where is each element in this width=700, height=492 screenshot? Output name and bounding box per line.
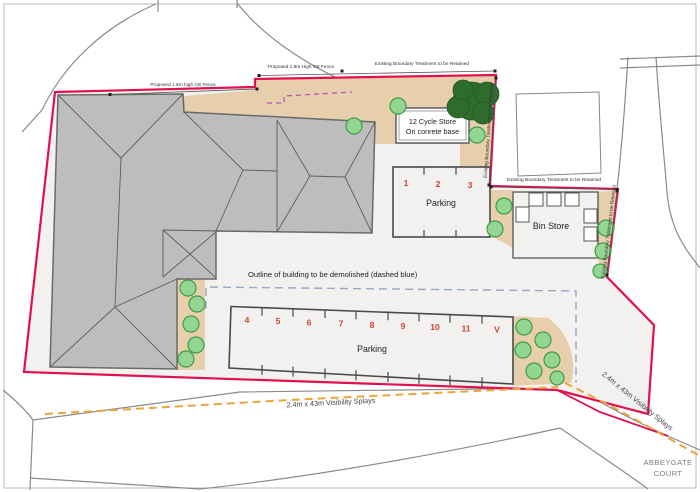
tree [346,118,362,134]
parking-space-number: 1 [404,178,409,188]
bin [547,193,561,206]
parking-upper-label: Parking [426,198,456,208]
tree [183,316,199,332]
cycle-store-label-1: 12 Cycle Store [409,117,456,126]
tree [526,363,542,379]
fence-label-west: Proposed 1.8m high CB Fence [150,82,216,88]
parking-space-number: 3 [468,180,473,190]
boundary-retained-label-binstore: Existing Boundary Treatment to be Retain… [507,177,601,183]
tree [188,337,204,353]
parking-upper: 1 2 3 Parking [393,167,490,237]
tree [487,221,503,237]
visibility-splay-label-west: 2.4m x 43m Visibility Splays [286,396,376,410]
abbeygate-court-label-1: ABBEYGATE [643,458,692,467]
fence-label-north: Proposed 1.8m High CB Fence [268,64,335,70]
tree [544,352,560,368]
parking-space-number: 2 [436,179,441,189]
se-road-bottom-edge [560,428,648,489]
tree [515,342,531,358]
neighbouring-building [516,92,601,176]
site-plan-drawing: 1 2 3 Parking 4 5 6 7 8 9 10 11 V Parkin… [0,0,700,492]
tree [550,371,564,385]
abbeygate-road-right-edge [656,57,700,268]
tree [496,198,512,214]
tree [469,127,485,143]
bin [584,227,597,241]
abbeygate-court-label-2: COURT [654,469,683,478]
tree [535,332,551,348]
road-edge-topright [620,56,700,59]
demolish-note: Outline of building to be demolished (da… [248,270,418,279]
tree [189,296,205,312]
tree [180,280,196,296]
tree [516,319,532,335]
parking-space-number: 10 [430,322,440,332]
boundary-retained-label-north: Existing Boundary Treatment to be Retain… [375,61,469,67]
parking-space-number: 5 [276,316,281,326]
bin-store: Bin Store [513,192,598,258]
tree [178,351,194,367]
front-road-bottom-edge [30,428,560,489]
road-corner-bottomleft [3,390,33,490]
parking-space-number: 8 [370,320,375,330]
bin [516,207,529,222]
parking-space-number: 7 [339,319,344,329]
parking-space-number: 9 [401,321,406,331]
parking-space-number: 11 [461,323,470,333]
bin [529,193,543,206]
bin [584,209,597,223]
road-edge-topright [620,65,700,68]
parking-space-number: 4 [245,315,250,325]
cycle-store-label-2: On conrete base [406,127,459,136]
parking-lower-label: Parking [357,344,387,354]
parking-space-number: V [494,325,500,335]
bin [565,193,579,206]
bin-store-label: Bin Store [533,221,569,231]
parking-space-number: 6 [307,318,312,328]
tree [390,98,406,114]
site-plan-page: 1 2 3 Parking 4 5 6 7 8 9 10 11 V Parkin… [0,0,700,492]
